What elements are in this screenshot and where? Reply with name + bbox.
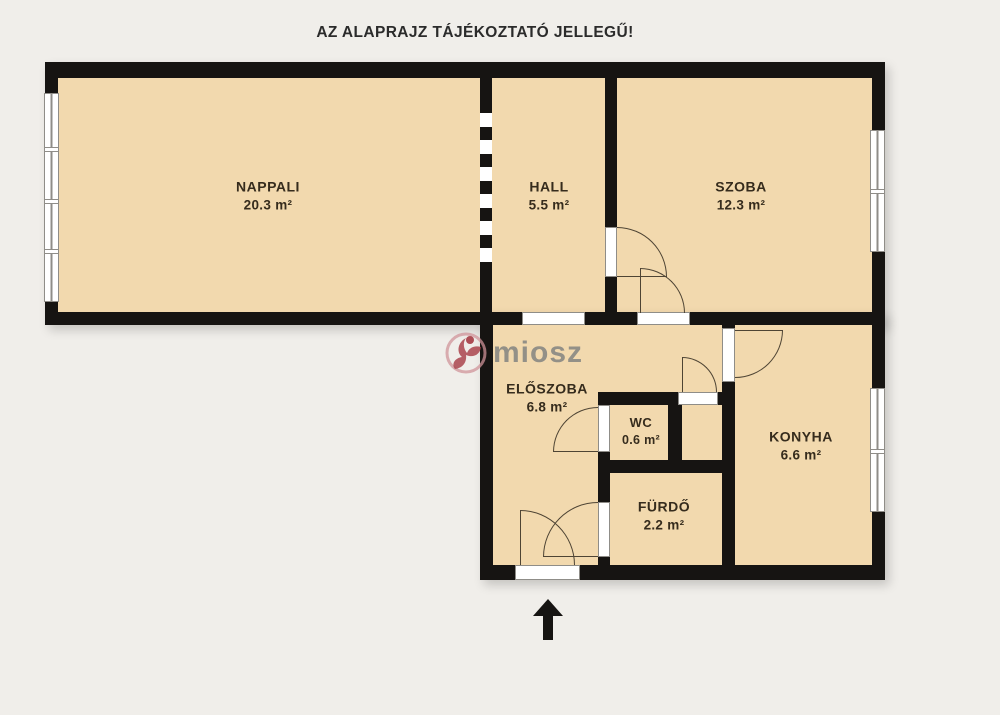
watermark: miosz bbox=[443, 330, 583, 376]
opening-szoba-door bbox=[637, 312, 690, 325]
window-nappali bbox=[44, 93, 59, 302]
room-label-szoba: SZOBA 12.3 m² bbox=[715, 177, 767, 214]
room-label-furdo: FÜRDŐ 2.2 m² bbox=[638, 497, 690, 534]
room-name: WC bbox=[622, 414, 660, 432]
opening-hall-szoba-door bbox=[605, 227, 617, 277]
room-area: 12.3 m² bbox=[715, 196, 767, 214]
opening-pantry-door bbox=[678, 392, 718, 405]
room-name: KONYHA bbox=[769, 427, 833, 446]
room-label-hall: HALL 5.5 m² bbox=[529, 177, 570, 214]
window-divider bbox=[44, 147, 59, 152]
window-divider bbox=[44, 249, 59, 254]
wall-wc-right bbox=[668, 405, 682, 460]
miosz-logo-icon bbox=[443, 330, 489, 376]
room-name: FÜRDŐ bbox=[638, 497, 690, 516]
room-label-konyha: KONYHA 6.6 m² bbox=[769, 427, 833, 464]
room-area: 6.6 m² bbox=[769, 446, 833, 464]
room-name: ELŐSZOBA bbox=[506, 379, 588, 398]
room-area: 0.6 m² bbox=[622, 431, 660, 448]
wall-middle-horizontal bbox=[45, 312, 885, 325]
room-name: NAPPALI bbox=[236, 177, 300, 196]
north-arrow-icon bbox=[533, 599, 563, 616]
opening-wc-door bbox=[598, 405, 610, 452]
opening-furdo-door bbox=[598, 502, 610, 557]
opening-entrance-door bbox=[515, 565, 580, 580]
window-divider bbox=[870, 449, 885, 454]
wall-nappali-hall-dashed-opening bbox=[480, 100, 492, 272]
room-area: 2.2 m² bbox=[638, 516, 690, 534]
wall-furdo-top bbox=[598, 460, 735, 473]
watermark-text: miosz bbox=[493, 336, 583, 370]
wall-nappali-hall-bottom-stub bbox=[480, 272, 492, 312]
wall-nappali-hall-top-stub bbox=[480, 78, 492, 100]
opening-hall-eloszoba bbox=[522, 312, 585, 325]
room-area: 5.5 m² bbox=[529, 196, 570, 214]
window-szoba bbox=[870, 130, 885, 252]
floorplan-canvas: AZ ALAPRAJZ TÁJÉKOZTATÓ JELLEGŰ! bbox=[0, 0, 1000, 715]
room-name: HALL bbox=[529, 177, 570, 196]
north-arrow-shaft bbox=[543, 615, 553, 640]
room-name: SZOBA bbox=[715, 177, 767, 196]
window-divider bbox=[44, 199, 59, 204]
room-label-wc: WC 0.6 m² bbox=[622, 414, 660, 448]
room-area: 20.3 m² bbox=[236, 196, 300, 214]
window-divider bbox=[870, 189, 885, 194]
wall-top bbox=[45, 62, 885, 78]
disclaimer-title: AZ ALAPRAJZ TÁJÉKOZTATÓ JELLEGŰ! bbox=[316, 24, 633, 42]
room-label-eloszoba: ELŐSZOBA 6.8 m² bbox=[506, 379, 588, 416]
room-area: 6.8 m² bbox=[506, 398, 588, 416]
window-konyha bbox=[870, 388, 885, 512]
opening-konyha-door bbox=[722, 328, 735, 382]
room-label-nappali: NAPPALI 20.3 m² bbox=[236, 177, 300, 214]
